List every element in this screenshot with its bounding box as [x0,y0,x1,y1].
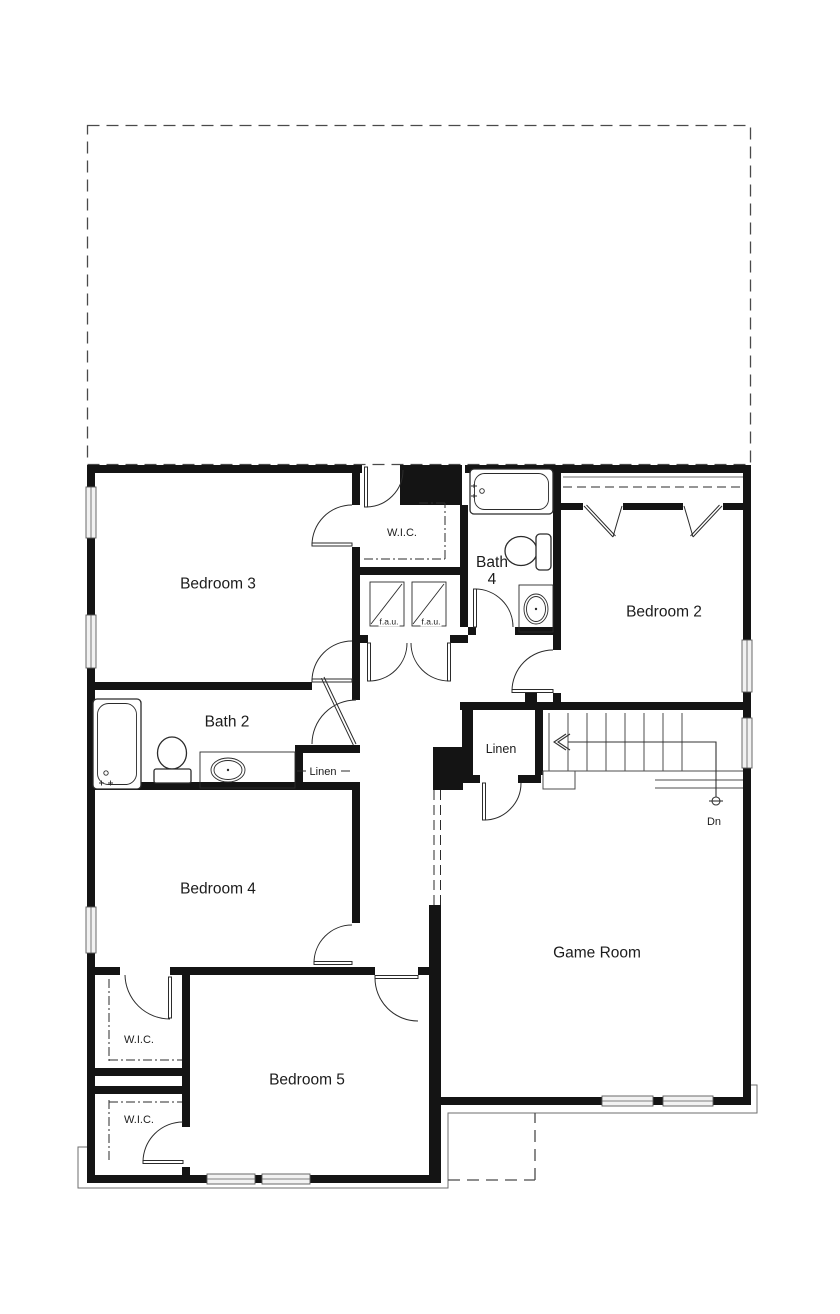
stairs-down-label: Dn [707,816,721,828]
bath4-line1: Bath [476,554,508,571]
lower-stair-treads [655,780,743,788]
open-below-dashed-outline [88,126,751,465]
stair-direction-arrow [554,734,723,805]
closet-label-linen-stairs: Linen [486,743,517,757]
bedroom4-door [314,925,352,965]
room-label-game-room: Game Room [553,944,641,961]
staircase [543,713,743,805]
closet-label-linen-hall: Linen [310,766,337,778]
bath2-tub [93,699,141,789]
closet-label-wic-upper: W.I.C. [124,1034,154,1046]
closet-label-wic-lower: W.I.C. [124,1114,154,1126]
fau-label-left: f.a.u. [379,617,400,626]
wic-upper-door [125,975,172,1019]
stair-nosing [543,771,575,789]
closet-label-wic-top: W.I.C. [387,527,417,539]
bath4-sink [519,585,553,632]
patio-dashed-outline [448,1113,535,1180]
fau-label-right: f.a.u. [421,617,442,626]
bedroom2-door [512,650,553,693]
bath4-door [474,589,514,627]
linen-stairs-door [483,783,522,820]
bedroom5-door [375,976,418,1022]
floor-plan: Bedroom 3 W.I.C. Bath4 Bedroom 2 Bath 2 … [0,0,840,1314]
wic-lower-door [143,1122,183,1164]
bath4-toilet [505,534,551,570]
wic-top-door [312,505,352,546]
room-label-bedroom3: Bedroom 3 [180,575,256,592]
cased-opening-dashed [434,790,441,905]
bath2-door [312,677,356,745]
room-label-bath4: Bath4 [476,554,508,588]
attic-door [365,467,404,507]
room-label-bedroom5: Bedroom 5 [269,1071,345,1088]
bedroom3-door [312,641,352,682]
room-label-bedroom2: Bedroom 2 [626,603,702,620]
fau-double-doors [368,643,451,681]
bath4-line2: 4 [488,571,497,588]
walls [87,465,751,1183]
room-label-bedroom4: Bedroom 4 [180,880,256,897]
room-label-bath2: Bath 2 [205,713,250,730]
chase-block [400,465,462,505]
bath2-toilet [154,737,191,783]
bath4-tub [470,469,553,514]
